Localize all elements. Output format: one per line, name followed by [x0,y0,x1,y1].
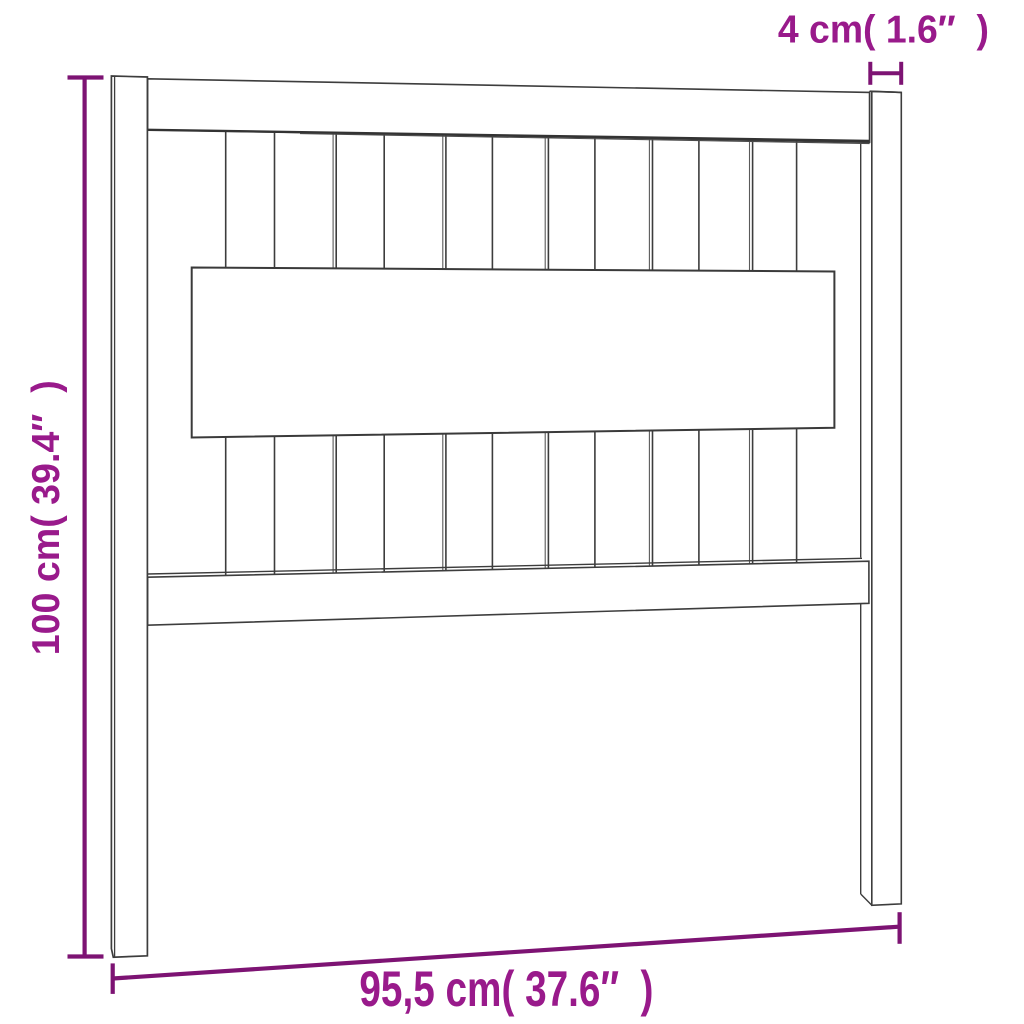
svg-text:95,5 cm( 37.6″ ): 95,5 cm( 37.6″ ) [359,961,653,1017]
svg-text:100 cm( 39.4″ ): 100 cm( 39.4″ ) [25,380,68,655]
svg-text:4 cm( 1.6″ ): 4 cm( 1.6″ ) [778,9,989,52]
